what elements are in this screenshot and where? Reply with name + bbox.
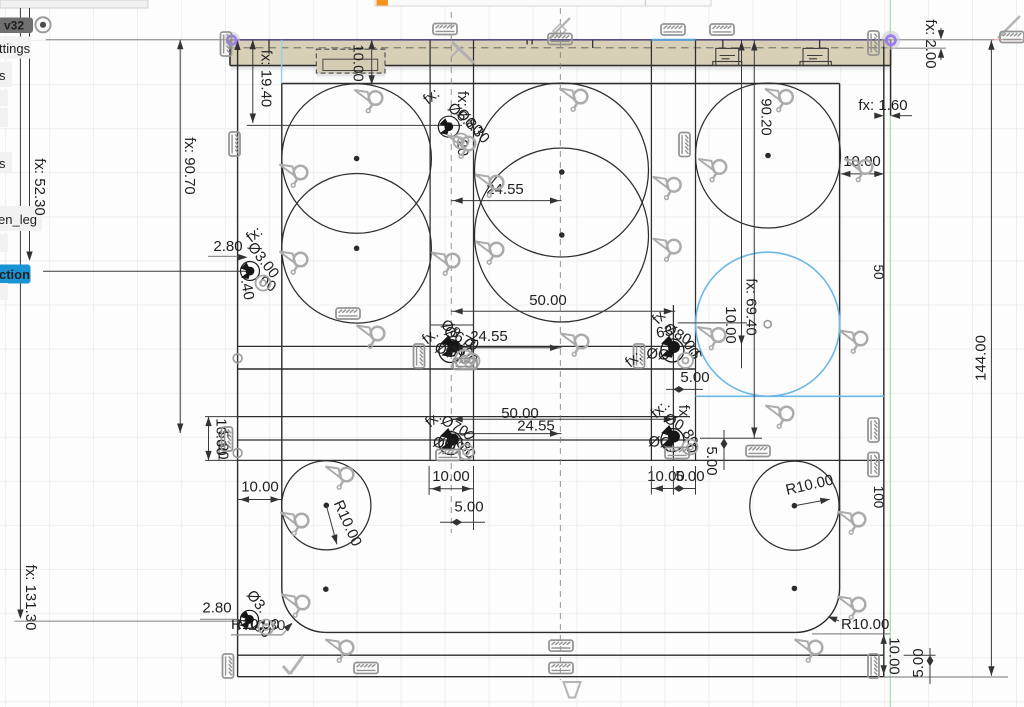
- svg-text:fx: 2.00: fx: 2.00: [922, 19, 939, 68]
- svg-text:10.00: 10.00: [432, 468, 470, 485]
- svg-text:100: 100: [871, 486, 886, 509]
- svg-text:fx: 1.60: fx: 1.60: [858, 97, 907, 114]
- svg-text:ction: ction: [0, 267, 30, 282]
- svg-text:fx: 131.30: fx: 131.30: [22, 565, 39, 631]
- svg-text:fx: 90.70: fx: 90.70: [181, 137, 198, 195]
- svg-text:144.00: 144.00: [973, 335, 990, 381]
- svg-text:v32: v32: [4, 19, 24, 33]
- svg-text:50: 50: [871, 264, 886, 279]
- svg-text:5.00: 5.00: [454, 499, 483, 516]
- svg-text:2.80: 2.80: [202, 600, 231, 617]
- svg-text:ØØ: ØØ: [646, 345, 671, 364]
- svg-text:10.00: 10.00: [886, 637, 903, 675]
- svg-text:2.80: 2.80: [213, 238, 242, 255]
- svg-text:ØØ: ØØ: [648, 433, 673, 452]
- svg-text:50.00: 50.00: [529, 292, 567, 309]
- svg-text:5.00: 5.00: [675, 468, 704, 485]
- svg-text:s: s: [0, 68, 6, 83]
- svg-text:.40: .40: [237, 278, 257, 301]
- svg-text:s: s: [0, 156, 6, 171]
- svg-text:fx: 19.40: fx: 19.40: [258, 50, 275, 108]
- svg-text:10.00: 10.00: [241, 479, 279, 496]
- svg-text:10.00: 10.00: [350, 44, 367, 82]
- svg-text:63: 63: [655, 322, 674, 342]
- svg-text:24.55: 24.55: [517, 418, 555, 435]
- svg-text:fx: 69.40: fx: 69.40: [743, 278, 760, 336]
- svg-text:ttings: ttings: [0, 41, 31, 56]
- svg-text:5.00: 5.00: [910, 648, 927, 677]
- svg-text:R10.00: R10.00: [841, 616, 889, 633]
- svg-text:90.20: 90.20: [758, 98, 775, 136]
- svg-text:fx: 52.30: fx: 52.30: [31, 158, 48, 216]
- svg-text:5.00: 5.00: [703, 446, 720, 475]
